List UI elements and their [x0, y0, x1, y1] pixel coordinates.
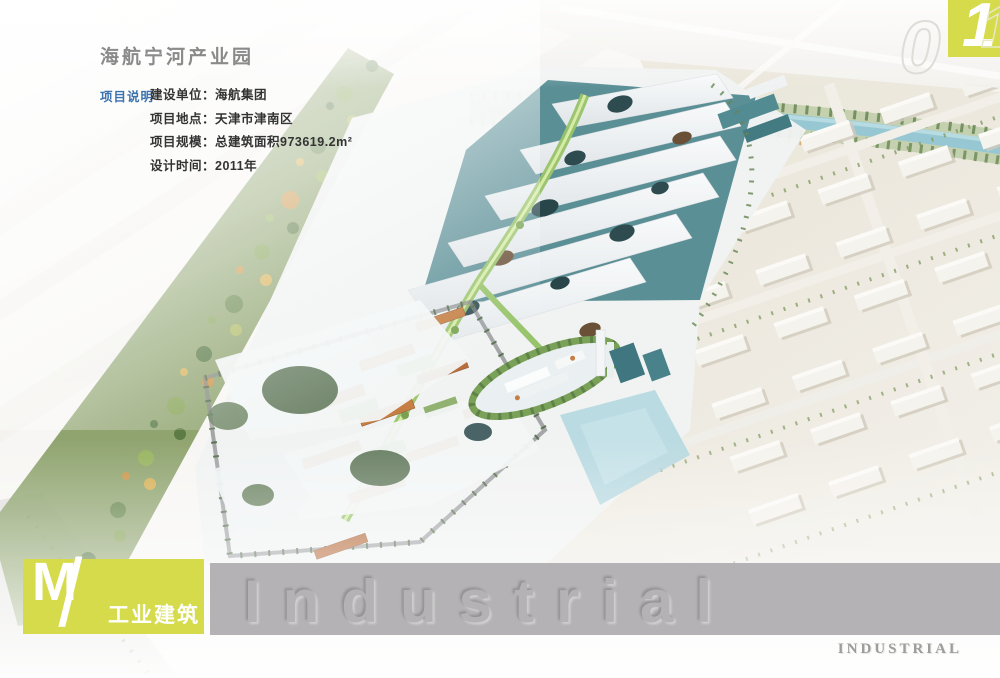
embossed-watermark: Industrial	[244, 567, 734, 635]
page-title: 海航宁河产业园	[100, 42, 254, 69]
page-number-box: 1 1	[948, 0, 1000, 57]
industrial-stamp: INDUSTRIAL	[838, 641, 962, 658]
project-info-line: 建设单位：海航集团	[150, 84, 352, 108]
project-info-line: 项目地点：天津市津南区	[150, 108, 352, 132]
section-label: 项目说明	[100, 86, 154, 105]
page-number-zero: 0	[890, 2, 950, 94]
portfolio-page: 海航宁河产业园 项目说明 建设单位：海航集团 项目地点：天津市津南区 项目规模：…	[0, 0, 1000, 678]
page-number-one-ghost: 1	[981, 0, 1000, 61]
slash-divider: /	[58, 539, 82, 649]
category-name: 工业建筑	[108, 599, 200, 629]
watermark-bar: Industrial	[210, 563, 1000, 635]
project-info-line: 项目规模：总建筑面积973619.2m²	[150, 131, 352, 155]
category-box: M / 工业建筑	[23, 559, 204, 634]
project-info: 建设单位：海航集团 项目地点：天津市津南区 项目规模：总建筑面积973619.2…	[150, 84, 352, 178]
project-info-line: 设计时间：2011年	[150, 155, 352, 179]
